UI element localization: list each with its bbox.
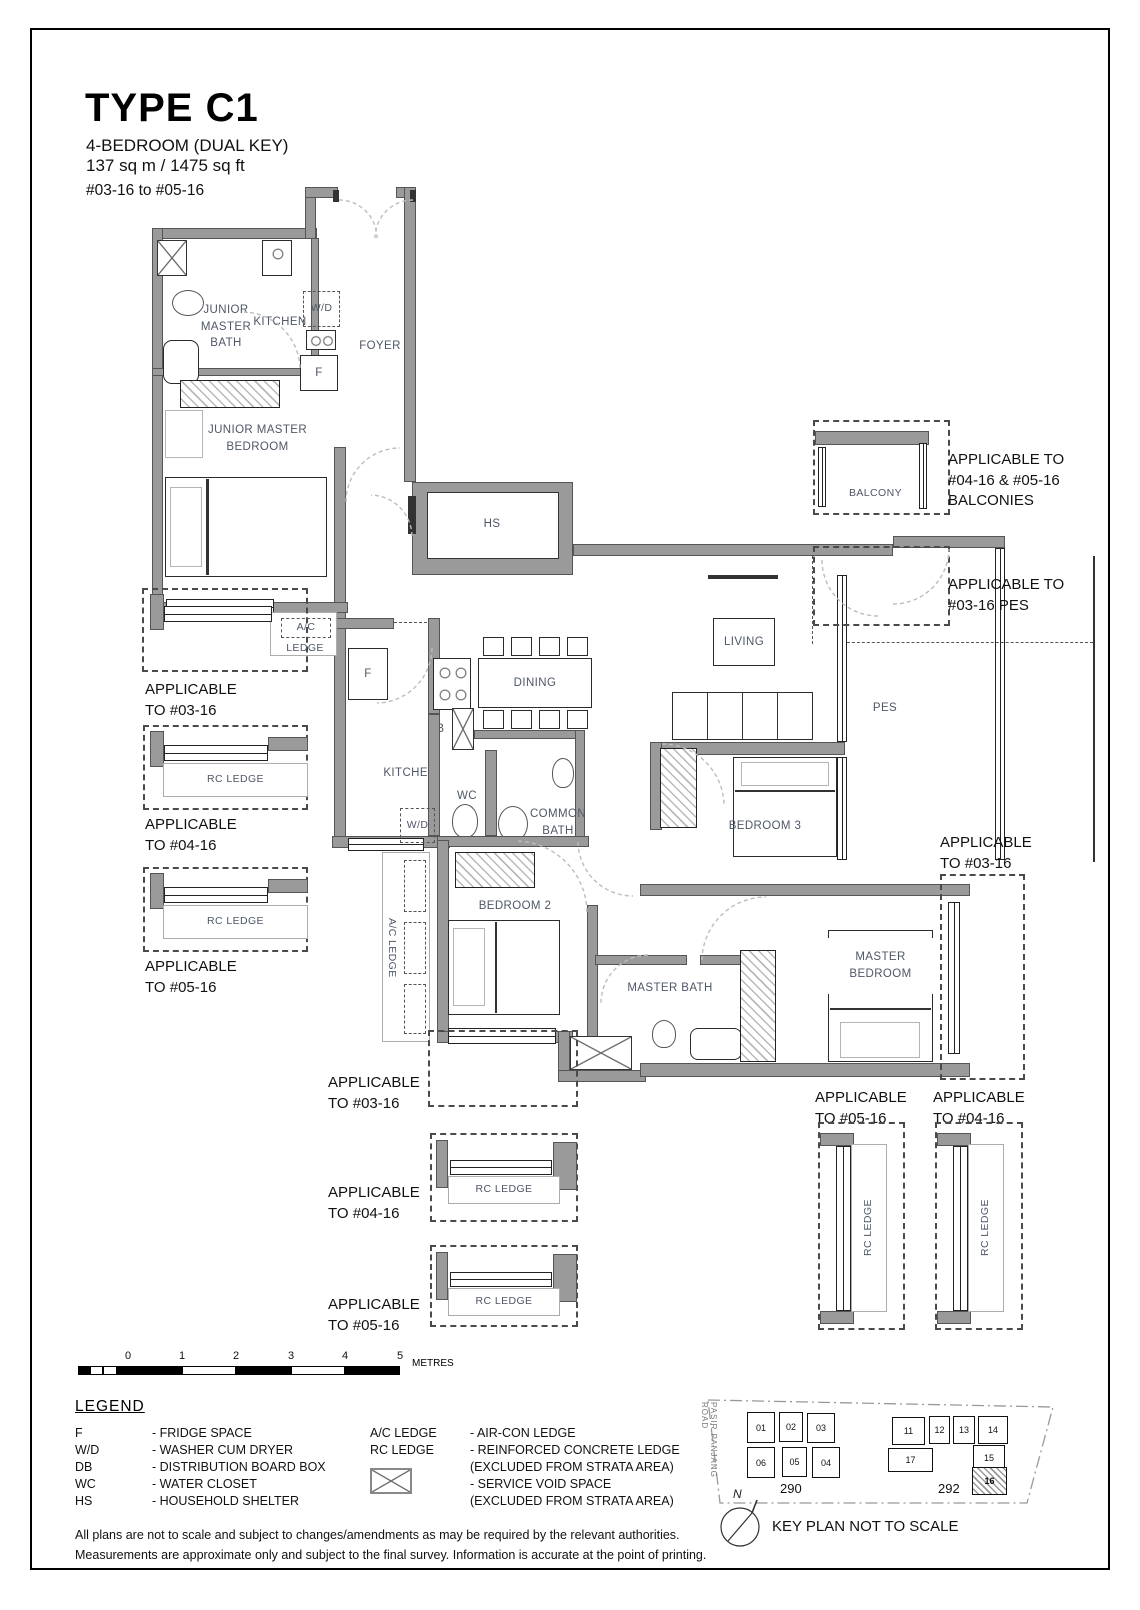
- wall-segment: [820, 1311, 854, 1324]
- key-plan-block: 06: [747, 1447, 775, 1478]
- room-label-balcony: BALCONY: [833, 486, 918, 501]
- wall-segment: [474, 730, 585, 739]
- window: [836, 1146, 851, 1311]
- bathtub: [690, 1028, 742, 1060]
- room-label-rc-ledge: RC LEDGE: [861, 1172, 876, 1284]
- legend-term: DB: [75, 1460, 92, 1474]
- stove: [433, 658, 471, 710]
- bed-pillows: [453, 928, 485, 1006]
- legend-term: HS: [75, 1494, 92, 1508]
- page-title: TYPE C1: [85, 86, 259, 131]
- wall-segment: [587, 905, 598, 1037]
- key-plan-block: 05: [782, 1447, 807, 1477]
- room-label-junior-bedroom: JUNIOR MASTER BEDROOM: [185, 422, 330, 455]
- sofa: [672, 692, 813, 740]
- dining-chair: [483, 637, 504, 656]
- window: [450, 1160, 552, 1175]
- bed-pillows: [170, 487, 202, 567]
- window: [837, 757, 847, 860]
- annotation-balconies: APPLICABLE TO #04-16 & #05-16 BALCONIES: [948, 450, 1064, 512]
- wall-segment: [595, 955, 687, 965]
- callout-box: [813, 546, 950, 626]
- door-leaf: [410, 190, 416, 202]
- legend-def: - WASHER CUM DRYER: [152, 1443, 293, 1457]
- bed-pillows: [840, 1022, 920, 1058]
- scale-tick: 3: [288, 1350, 294, 1362]
- room-label-fridge2: F: [348, 648, 388, 700]
- scale-tick: 1: [179, 1350, 185, 1362]
- room-label-wc: WC: [445, 788, 489, 805]
- annotation-pes-03: APPLICABLE TO #03-16 PES: [948, 575, 1064, 616]
- legend-def: - DISTRIBUTION BOARD BOX: [152, 1460, 326, 1474]
- hs-door-leaf: [408, 496, 416, 534]
- room-label-common-bath: COMMON BATH: [520, 806, 596, 839]
- key-plan-block: 02: [779, 1412, 803, 1442]
- room-label-master-bath: MASTER BATH: [618, 980, 722, 997]
- bed-line: [495, 922, 497, 1013]
- toilet: [552, 758, 574, 788]
- ac-unit-box: [404, 922, 426, 974]
- north-label: N: [733, 1487, 742, 1501]
- annotation-left-05: APPLICABLE TO #05-16: [145, 957, 237, 998]
- scale-tick: 4: [342, 1350, 348, 1362]
- room-label-wd1: W/D: [303, 291, 340, 327]
- door-leaf: [333, 190, 339, 202]
- washer: [306, 330, 336, 350]
- key-plan-block: 04: [812, 1447, 840, 1478]
- room-label-rc-ledge: RC LEDGE: [163, 905, 308, 939]
- room-label-living: LIVING: [713, 618, 775, 666]
- annotation-bottom-04: APPLICABLE TO #04-16: [328, 1183, 420, 1224]
- ac-unit-box: [404, 860, 426, 912]
- bed-line: [735, 790, 835, 792]
- dining-chair: [483, 710, 504, 729]
- pes-dashed-line: [847, 642, 1093, 643]
- shower: [157, 240, 187, 276]
- wall-segment: [937, 1311, 971, 1324]
- room-label-master-bedroom: MASTER BEDROOM: [828, 938, 933, 994]
- service-void: [452, 708, 474, 750]
- window: [450, 1272, 552, 1287]
- wall-segment: [820, 1133, 854, 1146]
- ac-unit-box: [404, 984, 426, 1034]
- floorplan-page: TYPE C1 4-BEDROOM (DUAL KEY) 137 sq m / …: [0, 0, 1140, 1610]
- dining-chair: [511, 637, 532, 656]
- annotation-bottom-03: APPLICABLE TO #03-16: [328, 1073, 420, 1114]
- dining-chair: [539, 637, 560, 656]
- legend-def: - FRIDGE SPACE: [152, 1426, 252, 1440]
- key-plan-block: 12: [929, 1416, 950, 1444]
- wall-segment: [437, 836, 589, 847]
- disclaimer-line2: Measurements are approximate only and su…: [75, 1548, 706, 1562]
- wall-segment: [436, 1140, 448, 1188]
- wall-segment: [700, 955, 745, 965]
- legend-def: - HOUSEHOLD SHELTER: [152, 1494, 299, 1508]
- key-plan-block: 14: [978, 1416, 1008, 1444]
- legend-term: RC LEDGE: [370, 1443, 434, 1457]
- legend-def: - WATER CLOSET: [152, 1477, 257, 1491]
- room-label-rc-ledge: RC LEDGE: [448, 1176, 560, 1204]
- window: [953, 1146, 968, 1311]
- wardrobe: [660, 748, 697, 828]
- room-label-ac-line2: LEDGE: [272, 641, 338, 656]
- room-label-rc-ledge: RC LEDGE: [163, 763, 308, 797]
- wall-segment: [815, 431, 929, 445]
- unit-numbers: #03-16 to #05-16: [86, 182, 204, 200]
- road-label: PASIR PANJANG ROAD: [700, 1402, 718, 1502]
- dining-chair: [511, 710, 532, 729]
- wardrobe: [180, 380, 280, 408]
- kitchen-sink: [262, 240, 292, 276]
- wall-segment: [436, 1252, 448, 1300]
- legend-def: - AIR-CON LEDGE: [470, 1426, 576, 1440]
- key-plan-block: 13: [953, 1416, 975, 1444]
- wall-segment: [150, 873, 164, 909]
- scale-unit: METRES: [412, 1358, 454, 1369]
- dining-chair: [539, 710, 560, 729]
- room-label-pes: PES: [860, 700, 910, 717]
- legend-term: F: [75, 1426, 83, 1440]
- room-label-ac-ledge-side: A/C LEDGE: [384, 895, 399, 1000]
- wall-segment: [640, 1063, 970, 1077]
- legend-term: W/D: [75, 1443, 99, 1457]
- wardrobe: [740, 950, 776, 1062]
- toilet: [452, 804, 478, 838]
- legend-def: - REINFORCED CONCRETE LEDGE: [470, 1443, 680, 1457]
- window: [164, 606, 272, 622]
- room-label-rc-ledge: RC LEDGE: [978, 1172, 993, 1284]
- legend-term: A/C LEDGE: [370, 1426, 437, 1440]
- wall-segment: [152, 228, 317, 239]
- building-number: 292: [938, 1481, 960, 1496]
- legend-def: (EXCLUDED FROM STRATA AREA): [470, 1494, 674, 1508]
- wall-segment: [268, 879, 308, 893]
- window: [919, 443, 927, 509]
- dashed-line: [394, 622, 432, 623]
- annotation-right-03: APPLICABLE TO #03-16: [940, 833, 1032, 874]
- scale-tick: 0: [125, 1350, 131, 1362]
- wall-segment: [268, 737, 308, 751]
- wall-segment: [640, 884, 970, 896]
- toilet: [652, 1020, 676, 1048]
- room-label-wd2: W/D: [400, 808, 435, 843]
- wall-segment: [150, 594, 164, 630]
- room-label-dining: DINING: [478, 658, 592, 708]
- scale-tick: 5: [397, 1350, 403, 1362]
- tv-console: [708, 575, 778, 579]
- key-plan-block: 11: [892, 1417, 925, 1445]
- key-plan-block: 03: [807, 1413, 835, 1443]
- room-label-bedroom3: BEDROOM 3: [710, 818, 820, 835]
- wall-segment: [152, 228, 163, 614]
- annotation-bottom-05: APPLICABLE TO #05-16: [328, 1295, 420, 1336]
- wall-segment: [150, 731, 164, 767]
- annotation-left-04: APPLICABLE TO #04-16: [145, 815, 237, 856]
- callout-box: [428, 1030, 578, 1107]
- room-label-ac-line1: A/C: [281, 618, 331, 638]
- room-label-bedroom2: BEDROOM 2: [460, 898, 570, 915]
- room-label-foyer: FOYER: [350, 338, 410, 355]
- bed-pillows: [741, 762, 829, 786]
- room-label-hs: HS: [427, 492, 557, 557]
- building-number: 290: [780, 1481, 802, 1496]
- wall-segment: [404, 187, 416, 482]
- legend-def: (EXCLUDED FROM STRATA AREA): [470, 1460, 674, 1474]
- key-plan-block: 01: [747, 1412, 775, 1443]
- shower: [570, 1036, 632, 1070]
- window: [164, 745, 268, 761]
- callout-box: [940, 874, 1025, 1080]
- room-label-fridge1: F: [300, 355, 338, 391]
- key-plan-caption: KEY PLAN NOT TO SCALE: [772, 1518, 958, 1535]
- legend-heading: LEGEND: [75, 1398, 145, 1416]
- legend-def: - SERVICE VOID SPACE: [470, 1477, 611, 1491]
- dining-chair: [567, 637, 588, 656]
- wall-segment: [330, 618, 394, 629]
- legend-term: WC: [75, 1477, 96, 1491]
- window: [164, 887, 268, 903]
- disclaimer-line1: All plans are not to scale and subject t…: [75, 1528, 680, 1542]
- wall-segment: [937, 1133, 971, 1146]
- bed-line: [206, 479, 209, 575]
- dining-chair: [567, 710, 588, 729]
- unit-type-subtitle: 4-BEDROOM (DUAL KEY): [86, 136, 288, 156]
- scale-tick: 2: [233, 1350, 239, 1362]
- unit-area-subtitle: 137 sq m / 1475 sq ft: [86, 156, 245, 176]
- window: [818, 447, 826, 507]
- service-void-symbol: [370, 1468, 412, 1494]
- room-label-rc-ledge: RC LEDGE: [448, 1288, 560, 1316]
- key-plan-block: 17: [888, 1448, 933, 1472]
- pes-boundary-line: [1093, 556, 1095, 862]
- annotation-left-03: APPLICABLE TO #03-16: [145, 680, 237, 721]
- bed-line: [830, 1008, 931, 1010]
- key-plan-block-highlighted: 16: [972, 1467, 1007, 1495]
- wardrobe: [455, 852, 535, 888]
